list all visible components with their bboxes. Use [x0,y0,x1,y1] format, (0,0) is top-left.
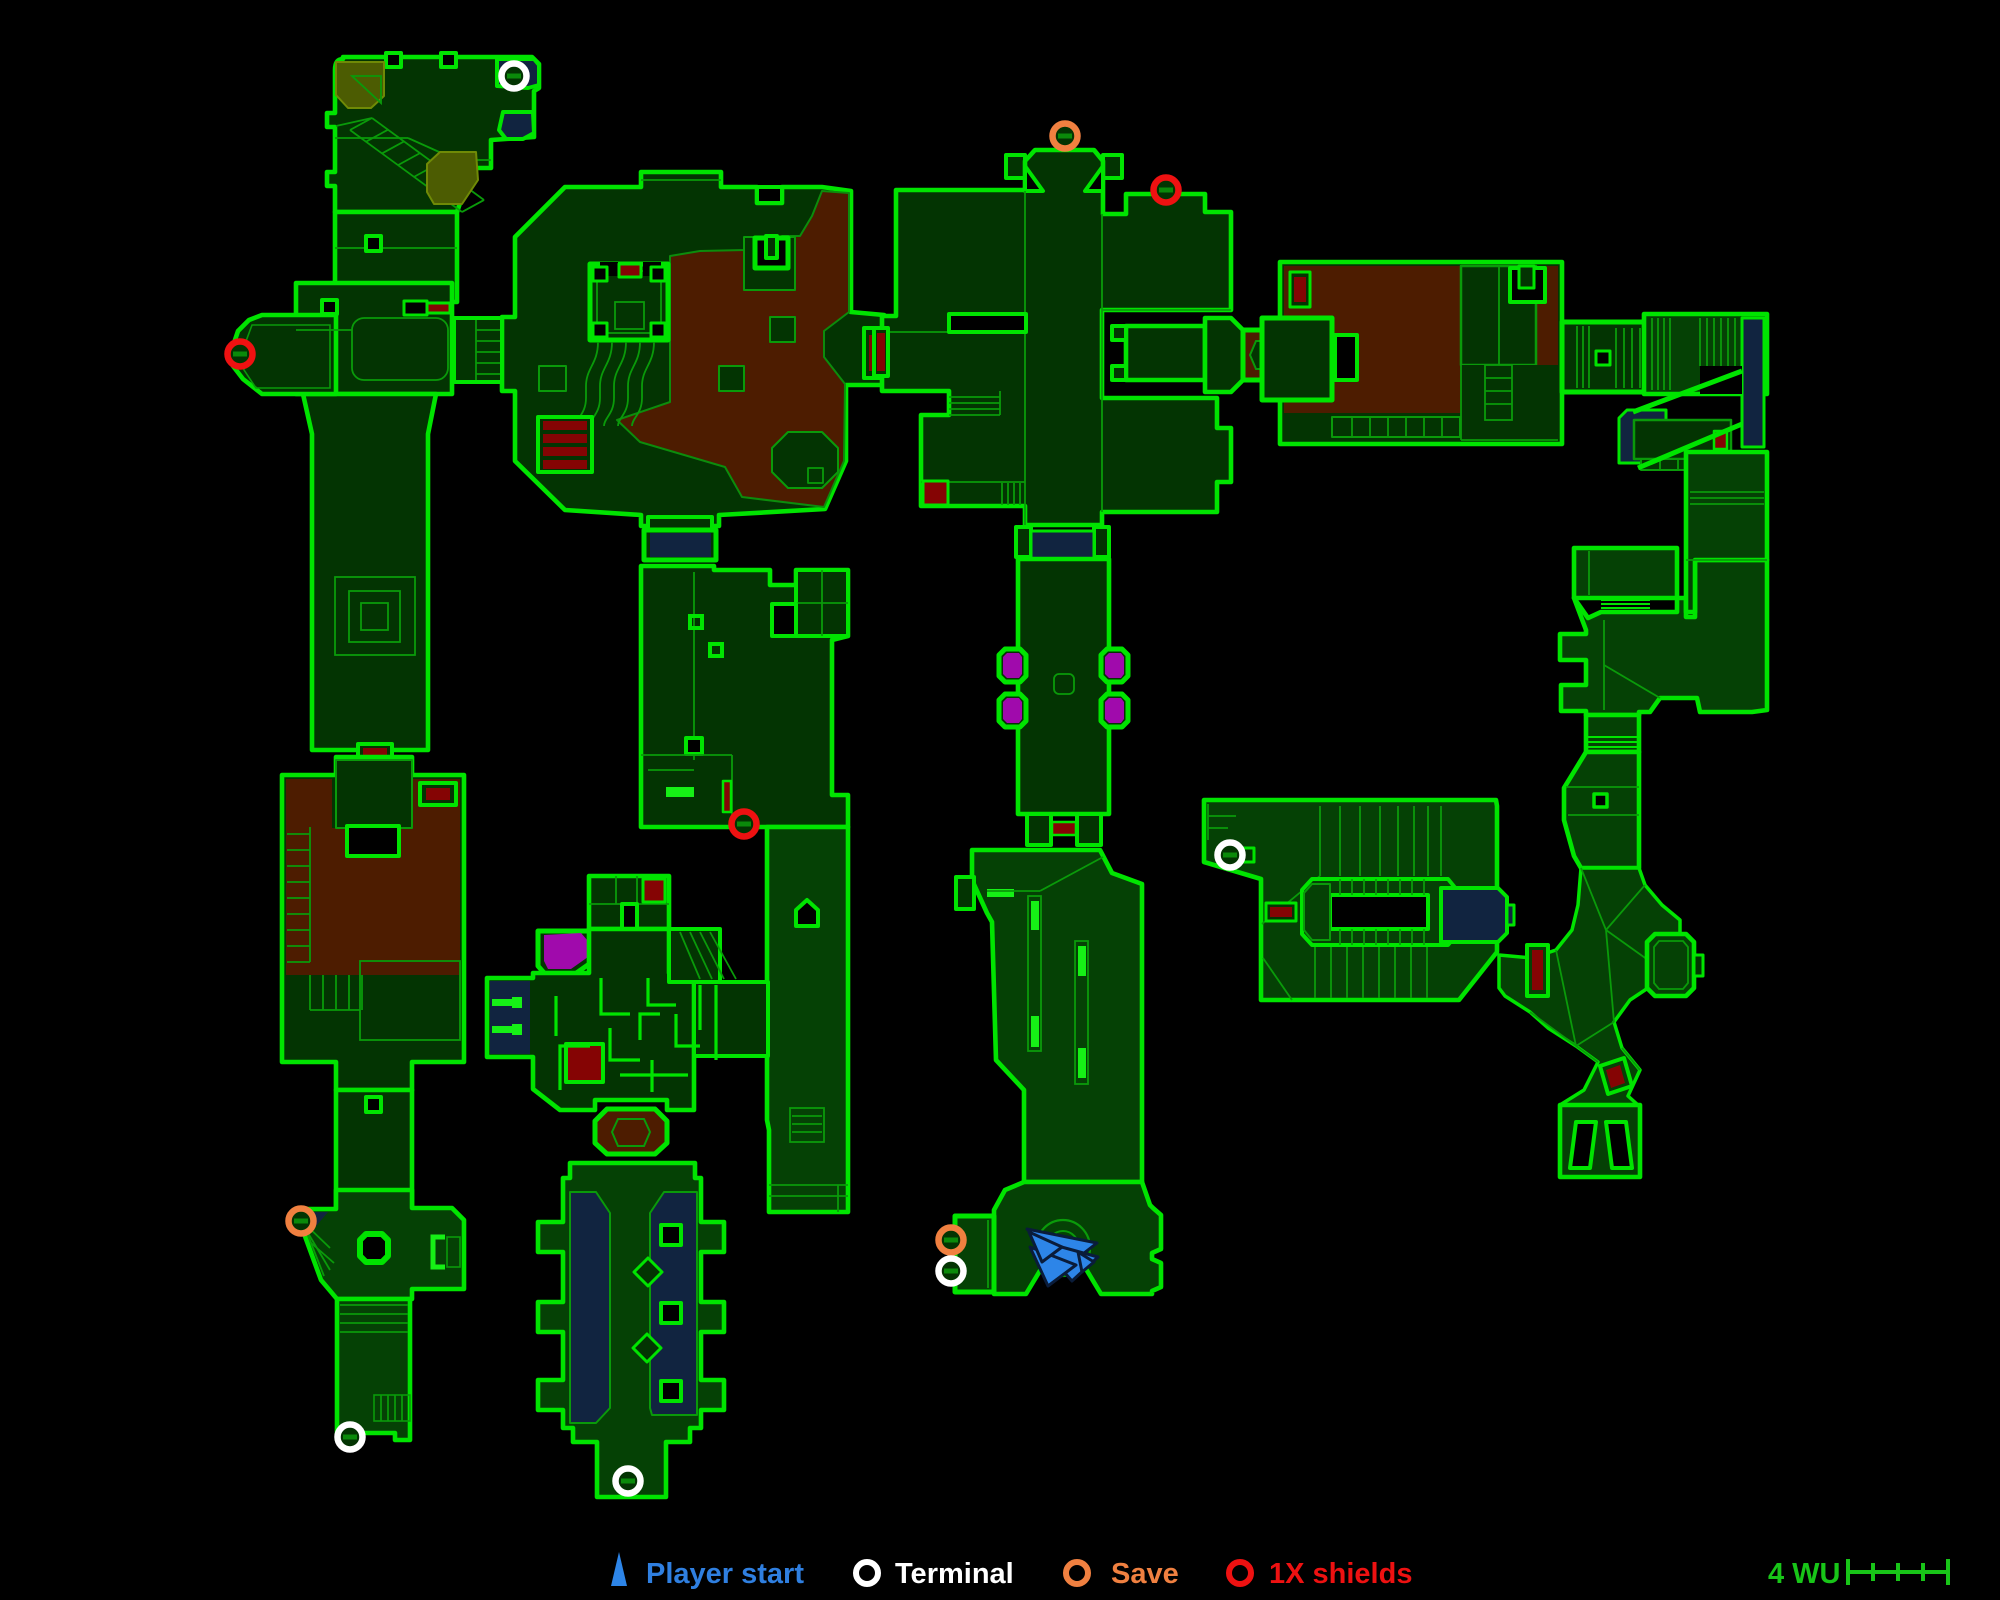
svg-text:Player start: Player start [646,1558,804,1590]
svg-text:4 WU: 4 WU [1768,1558,1841,1590]
svg-text:Save: Save [1111,1558,1179,1590]
svg-text:Terminal: Terminal [895,1558,1014,1590]
svg-text:1X shields: 1X shields [1269,1558,1412,1590]
